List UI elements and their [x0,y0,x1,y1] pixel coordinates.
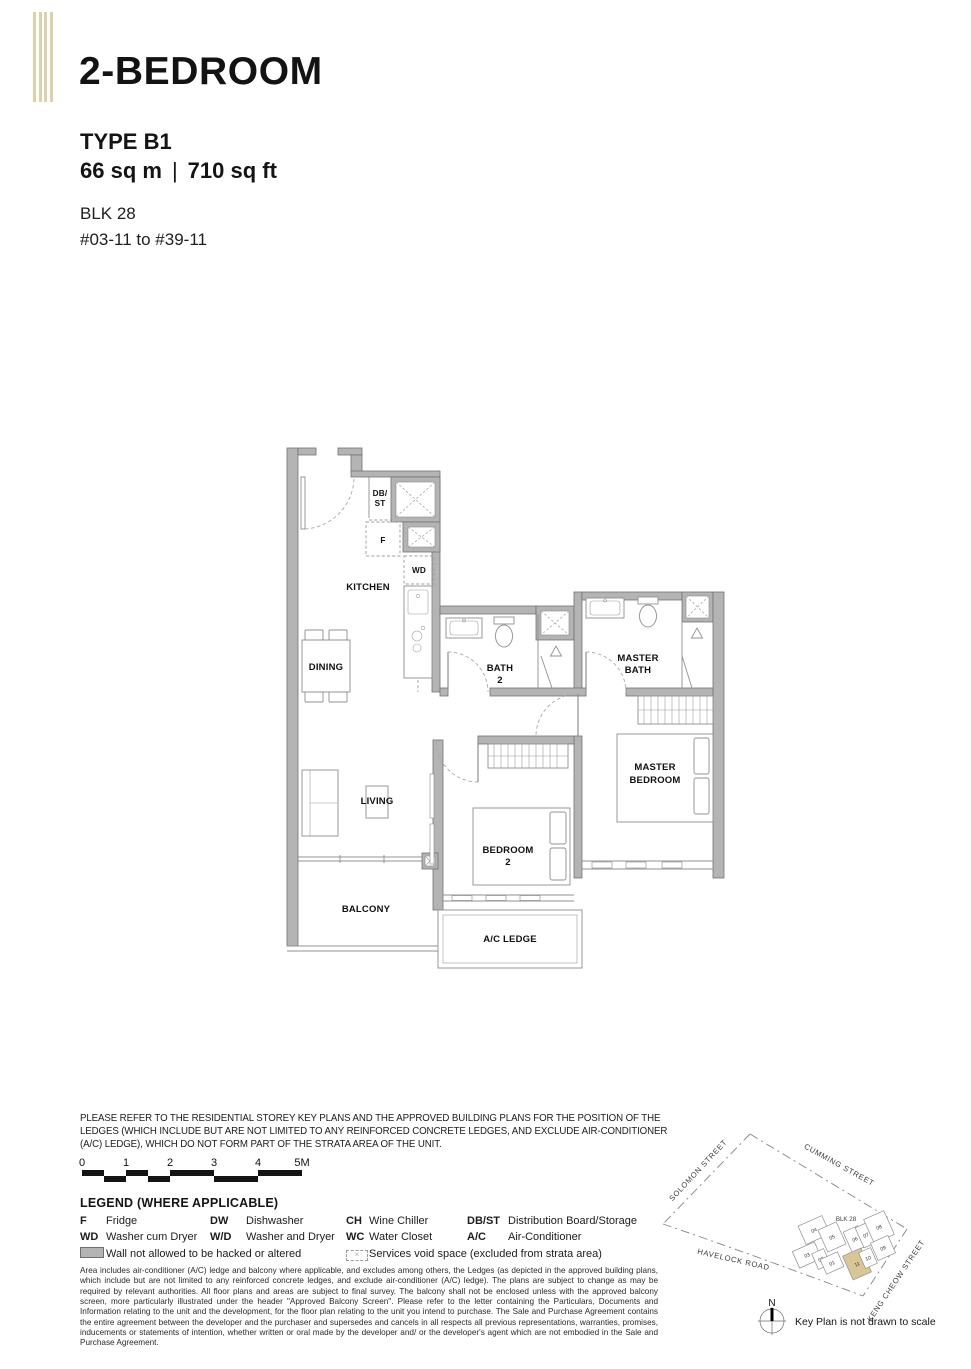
room-label-dining: DINING [309,662,343,673]
disclaimer-line: (A/C) LEDGE), WHICH DO NOT FORM PART OF … [80,1139,667,1152]
room-label-bedroom2: BEDROOM [482,845,533,856]
room-label-master-bedroom: MASTER [634,762,675,773]
room-label-master-bath: MASTER [617,653,658,664]
room-label-bath2: BATH [487,663,513,674]
scale-bar: 0 1 2 3 4 5M [78,1154,318,1190]
legend-desc: Water Closet [369,1231,467,1243]
stripe [33,12,36,102]
legend-abbr: WC [346,1231,369,1243]
street-label-solomon: SOLOMON STREET [667,1138,729,1203]
wall-swatch-icon [80,1247,106,1261]
room-label-bedroom2-num: 2 [505,857,510,868]
room-label-balcony: BALCONY [342,904,391,915]
disclaimer-line: LEDGES (WHICH INCLUDE BUT ARE NOT LIMITE… [80,1126,667,1139]
room-label-dbst2: ST [375,499,386,508]
block-label: BLK 28 [80,204,136,224]
area-sqm: 66 sq m [80,158,162,183]
page-title: 2-BEDROOM [79,50,323,94]
scale-tick: 0 [79,1157,85,1169]
scale-tick: 3 [211,1157,217,1169]
unit-range-label: #03-11 to #39-11 [80,230,207,250]
room-label-dbst: DB/ [373,489,388,498]
scale-bar-segments [82,1170,302,1182]
room-label-kitchen: KITCHEN [346,582,390,593]
legend-heading: LEGEND (WHERE APPLICABLE) [80,1196,680,1210]
fine-print: Area includes air-conditioner (A/C) ledg… [80,1266,658,1349]
scale-tick: 2 [167,1157,173,1169]
street-label-havelock: HAVELOCK ROAD [697,1247,771,1272]
disclaimer-line: PLEASE REFER TO THE RESIDENTIAL STOREY K… [80,1113,667,1126]
room-label-bath2-num: 2 [497,675,502,686]
legend-abbr: DW [210,1215,246,1227]
legend-desc: Washer and Dryer [246,1231,346,1243]
room-label-fridge: F [380,536,385,545]
scale-tick: 5M [294,1157,309,1169]
compass-icon: N [758,1298,786,1335]
scale-tick: 1 [123,1157,129,1169]
street-label-cumming: CUMMING STREET [802,1142,875,1188]
services-void-swatch-icon: × [346,1248,369,1261]
legend: LEGEND (WHERE APPLICABLE) F Fridge DW Di… [80,1196,680,1261]
legend-wall-note: Wall not allowed to be hacked or altered [106,1248,346,1260]
stripe [44,12,47,102]
area-divider: | [172,158,178,183]
legend-desc: Fridge [106,1215,210,1227]
scale-tick: 4 [255,1157,261,1169]
legend-desc: Washer cum Dryer [106,1231,210,1243]
key-plan: SOLOMON STREET CUMMING STREET HAVELOCK R… [648,1118,970,1366]
legend-services-note: Services void space (excluded from strat… [369,1248,680,1260]
stripe [50,12,53,102]
area-sqft: 710 sq ft [188,158,277,183]
decorative-stripes [33,12,53,102]
room-label-wd: WD [412,566,426,575]
room-label-ac-ledge: A/C LEDGE [483,934,537,945]
legend-abbr: W/D [210,1231,246,1243]
legend-desc: Wine Chiller [369,1215,467,1227]
legend-abbr: A/C [467,1231,508,1243]
floorplan-page: 2-BEDROOM TYPE B1 66 sq m|710 sq ft BLK … [0,0,971,1369]
unit-area: 66 sq m|710 sq ft [80,158,277,184]
room-label-living: LIVING [361,796,394,807]
room-label-master-bath2: BATH [625,665,651,676]
ledge-disclaimer: PLEASE REFER TO THE RESIDENTIAL STOREY K… [80,1113,667,1151]
keyplan-block-label: BLK 28 [836,1216,857,1223]
floor-plan: DB/ ST F WD KITCHEN DINING LIVING BALCON… [280,440,740,975]
keyplan-note: Key Plan is not drawn to scale [795,1316,936,1328]
legend-abbr: F [80,1215,106,1227]
room-label-master-bedroom2: BEDROOM [629,775,680,786]
legend-abbr: CH [346,1215,369,1227]
legend-desc: Dishwasher [246,1215,346,1227]
stripe [39,12,42,102]
unit-type-label: TYPE B1 [80,129,172,155]
legend-abbr: DB/ST [467,1215,508,1227]
legend-abbr: WD [80,1231,106,1243]
